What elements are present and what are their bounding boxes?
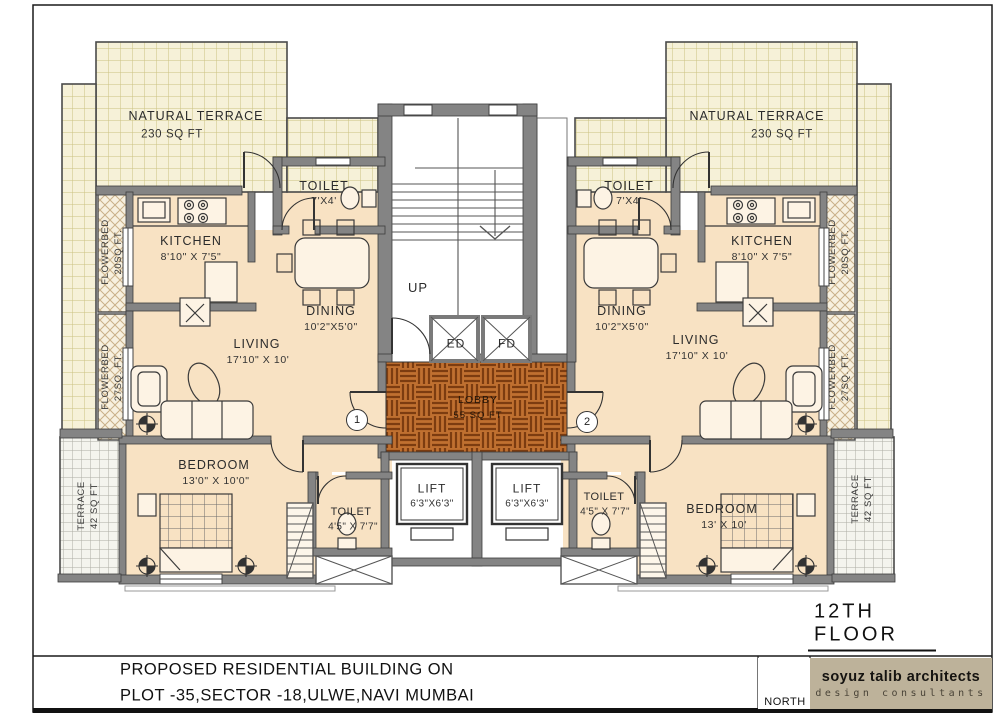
dining1-label: DINING — [306, 305, 356, 319]
toilet2-bottom-label: TOILET — [584, 491, 625, 503]
flat2-number: 2 — [576, 411, 598, 433]
flowerbed1-top-label: FLOWERBED20SQ FT. — [100, 219, 126, 285]
toilet2-top-dims: 7'X4' — [616, 196, 642, 208]
flowerbed2-top-label: FLOWERBED20SQ FT. — [827, 219, 853, 285]
kitchen2-dims: 8'10" X 7'5" — [732, 252, 793, 264]
kitchen1-dims: 8'10" X 7'5" — [161, 252, 222, 264]
terrace1-side-label: TERRACE42 SQ FT — [76, 481, 102, 531]
duct-fd-label: FD — [498, 337, 516, 350]
toilet2-top-label: TOILET — [604, 180, 654, 194]
architect-block: soyuz talib architects design consultant… — [810, 658, 992, 709]
lift2-dims: 6'3"X6'3" — [505, 499, 548, 510]
living2-dims: 17'10" X 10' — [666, 351, 729, 363]
lift2-label: LIFT — [513, 482, 542, 495]
toilet2-bottom-dims: 4'5" X 7'7" — [580, 507, 630, 518]
terrace1-area: 230 SQ FT — [141, 129, 203, 142]
living1-dims: 17'10" X 10' — [227, 355, 290, 367]
living1-label: LIVING — [234, 338, 281, 352]
stair-up-label: UP — [408, 281, 428, 295]
kitchen1-label: KITCHEN — [160, 235, 222, 249]
lift1-dims: 6'3"X6'3" — [410, 499, 453, 510]
floor-plan-sheet: NATURAL TERRACE 230 SQ FT NATURAL TERRAC… — [0, 0, 1000, 718]
floor-title: 12TH FLOOR — [808, 601, 936, 652]
kitchen2-label: KITCHEN — [731, 235, 793, 249]
flowerbed1-mid-label: FLOWERBED27SQ. FT. — [100, 344, 126, 410]
living2-label: LIVING — [673, 334, 720, 348]
architect-tagline: design consultants — [815, 688, 986, 699]
flat1-number: 1 — [346, 409, 368, 431]
flowerbed2-mid-label: FLOWERBED27SQ. FT. — [827, 344, 853, 410]
lobby-area: 55 SQ FT — [453, 411, 502, 421]
lift1-label: LIFT — [418, 482, 447, 495]
toilet1-top-label: TOILET — [299, 180, 349, 194]
drawing-title-line1: PROPOSED RESIDENTIAL BUILDING ON — [120, 661, 454, 680]
bedroom2-label: BEDROOM — [686, 503, 758, 517]
bedroom1-label: BEDROOM — [178, 459, 250, 473]
duct-ed-label: ED — [447, 337, 466, 350]
terrace2-label: NATURAL TERRACE — [690, 110, 825, 124]
lobby-label: LOBBY — [458, 395, 498, 407]
toilet1-bottom-label: TOILET — [331, 506, 372, 518]
dining2-dims: 10'2"X5'0" — [595, 322, 649, 334]
north-label: NORTH — [764, 696, 805, 708]
terrace2-side-label: TERRACE42 SQ FT — [850, 474, 876, 524]
bedroom2-dims: 13' X 10' — [701, 520, 747, 532]
drawing-title-line2: PLOT -35,SECTOR -18,ULWE,NAVI MUMBAI — [120, 687, 474, 706]
terrace1-label: NATURAL TERRACE — [129, 110, 264, 124]
toilet1-bottom-dims: 4'5" X 7'7" — [328, 522, 378, 533]
architect-name: soyuz talib architects — [822, 669, 980, 685]
toilet1-top-dims: 7'X4' — [311, 196, 337, 208]
terrace2-area: 230 SQ FT — [751, 129, 813, 142]
dining2-label: DINING — [597, 305, 647, 319]
dining1-dims: 10'2"X5'0" — [304, 322, 358, 334]
bedroom1-dims: 13'0" X 10'0" — [182, 476, 249, 488]
